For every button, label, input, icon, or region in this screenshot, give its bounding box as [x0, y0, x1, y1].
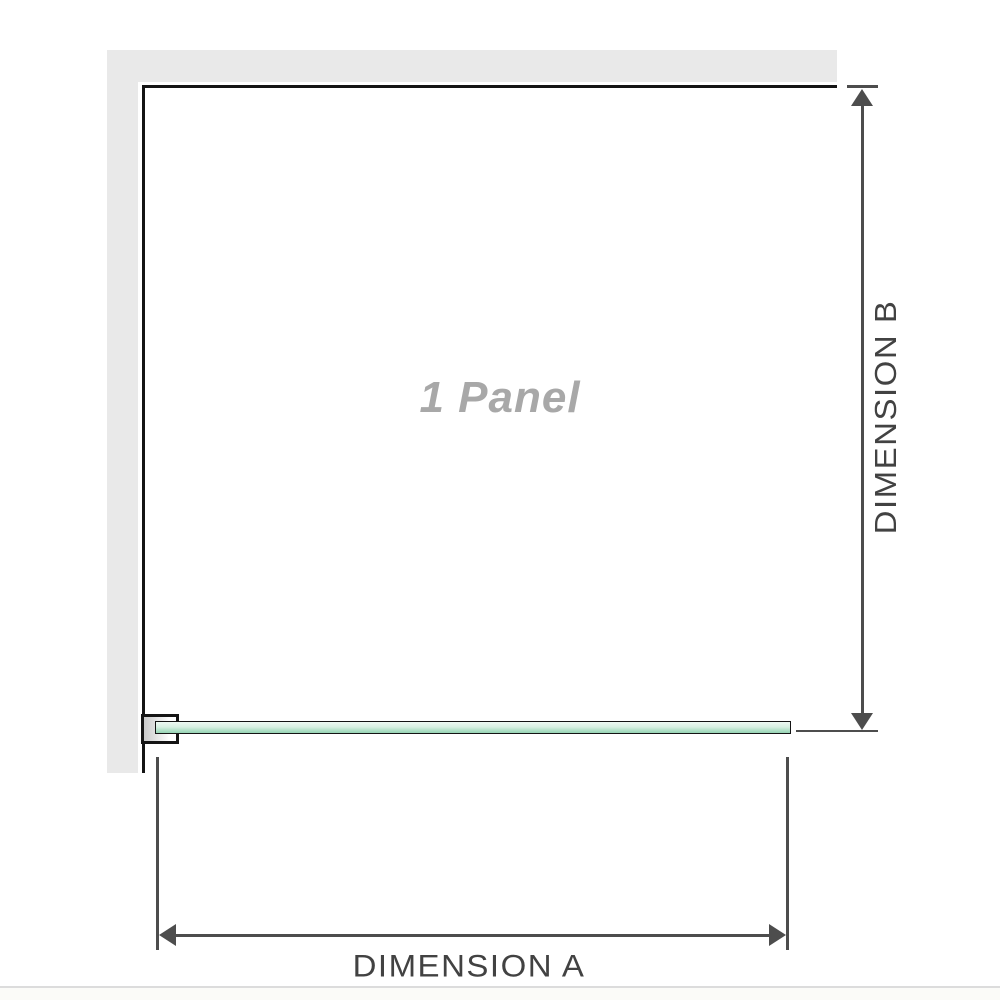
dimension-a-label: DIMENSION A: [353, 948, 586, 984]
dimension-b-arrowhead-down-icon: [851, 713, 873, 730]
dimension-a-extension-right: [786, 757, 789, 950]
dimension-b-label: DIMENSION B: [869, 300, 904, 535]
wall-inner-edge-top: [142, 85, 837, 88]
panel-count-label: 1 Panel: [419, 373, 580, 423]
bottom-page-strip: [0, 988, 1000, 1000]
dimension-a-arrowhead-left-icon: [159, 924, 176, 946]
dimension-b-tick-top: [847, 85, 878, 88]
wall-top: [107, 50, 837, 82]
dimension-b-line: [861, 100, 864, 718]
wall-inner-edge-left: [142, 85, 145, 773]
wall-left: [107, 50, 138, 773]
glass-panel: [155, 721, 791, 734]
dimension-a-arrowhead-right-icon: [769, 924, 786, 946]
dimension-a-extension-left: [156, 757, 159, 950]
dimension-b-arrowhead-up-icon: [851, 89, 873, 106]
dimension-a-line: [168, 934, 770, 937]
